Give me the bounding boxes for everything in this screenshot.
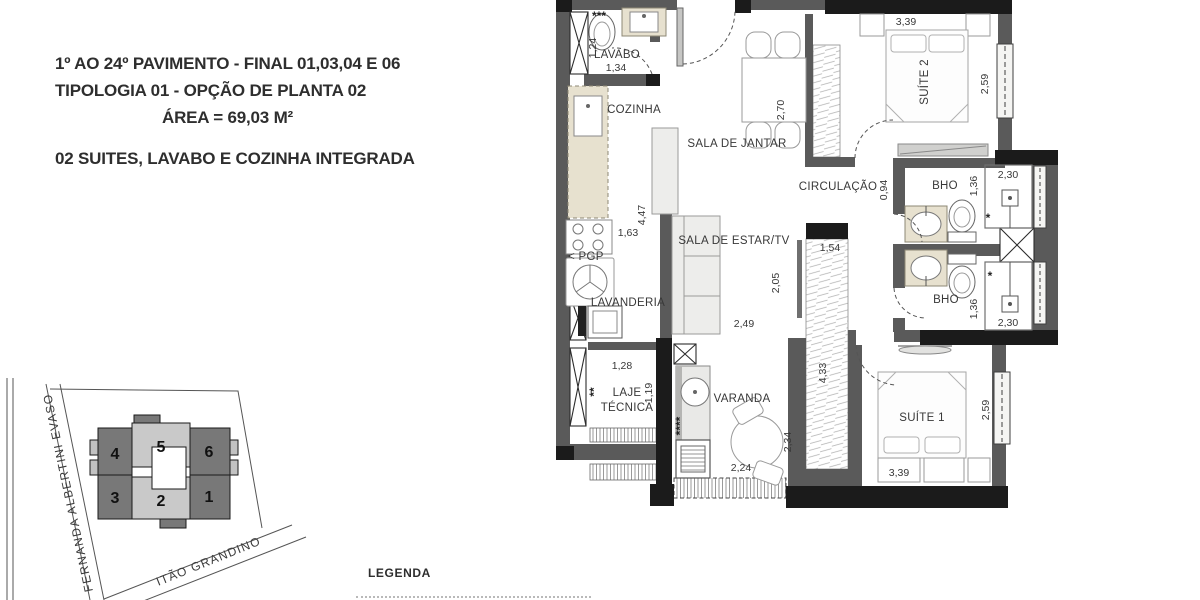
note-stars-varanda: **** xyxy=(673,416,687,435)
room-label-sala-jantar: SALA DE JANTAR xyxy=(687,138,786,150)
entry-door-arc xyxy=(683,11,735,64)
room-label-sala-estar: SALA DE ESTAR/TV xyxy=(678,235,789,247)
room-label-cozinha: COZINHA xyxy=(607,104,661,116)
floor-plan: LAVABO COZINHA SALA DE JANTAR CIRCULAÇÃO… xyxy=(552,0,1060,515)
dim-suite1-w: 3,39 xyxy=(889,467,910,479)
window-suite2 xyxy=(997,44,1013,118)
room-label-varanda: VARANDA xyxy=(714,393,771,405)
unit-1: 1 xyxy=(205,489,214,506)
duct xyxy=(578,306,586,336)
window-shower-top xyxy=(1034,166,1046,228)
room-label-bho-bottom: BHO xyxy=(933,294,959,306)
faucet-dot xyxy=(586,104,590,108)
unit-4: 4 xyxy=(111,446,120,463)
dining-table xyxy=(742,58,806,122)
dim-jantar-h: 2,70 xyxy=(775,100,787,121)
dim-bho-top-h: 1,36 xyxy=(968,176,980,197)
room-label-lavanderia: LAVANDERIA xyxy=(591,297,665,309)
bho-bottom-toilet xyxy=(948,254,976,298)
street-name-grandino: ITÃO GRANDINO xyxy=(154,534,263,589)
shower-head-bottom xyxy=(1002,262,1018,312)
note-stars-laje: ** xyxy=(587,387,601,397)
dim-lavabo-h: 1,24 xyxy=(587,38,599,59)
nightstand xyxy=(860,14,884,36)
laje-grille-top xyxy=(590,428,658,442)
shaft xyxy=(1000,228,1034,262)
pillow xyxy=(929,35,964,52)
dim-bho-top-w: 2,30 xyxy=(998,169,1019,181)
nightstand xyxy=(966,14,990,36)
dim-cozinha-w: 1,63 xyxy=(618,227,639,239)
tv-panel xyxy=(797,240,802,318)
room-label-pgp: < PGP xyxy=(568,251,604,263)
floorplan-page: 1º AO 24º PAVIMENTO - FINAL 01,03,04 E 0… xyxy=(0,0,1200,600)
dim-closet-h: 4,33 xyxy=(817,363,829,384)
chair xyxy=(746,32,771,58)
nightstand xyxy=(968,458,990,482)
note-stars-lavabo: *** xyxy=(592,9,606,23)
room-label-suite2: SUÍTE 2 xyxy=(918,59,931,105)
dim-varanda-w: 2,24 xyxy=(731,462,752,474)
dim-varanda-h: 2,34 xyxy=(782,432,794,453)
shaft xyxy=(570,12,588,74)
dim-bho-bottom-w: 2,30 xyxy=(998,317,1019,329)
dim-cozinha-h: 4,47 xyxy=(636,205,648,226)
pillow xyxy=(891,35,926,52)
pillow xyxy=(884,437,919,453)
dining-set xyxy=(742,32,806,148)
laundry-tank xyxy=(588,306,622,338)
title-block: 1º AO 24º PAVIMENTO - FINAL 01,03,04 E 0… xyxy=(55,50,415,172)
unit-3: 3 xyxy=(111,490,120,507)
dim-closet-top: 1,54 xyxy=(820,242,841,254)
pillow xyxy=(925,437,960,453)
bho-top-sink xyxy=(905,206,947,242)
closet-main xyxy=(806,239,848,469)
dim-bho-bottom-h: 1,36 xyxy=(968,299,980,320)
dim-laje-h: 1,19 xyxy=(643,383,655,404)
legend-title: LEGENDA xyxy=(368,566,431,580)
dim-lavabo-w: 1,34 xyxy=(606,62,627,74)
title-subtitle: 02 SUITES, LAVABO E COZINHA INTEGRADA xyxy=(55,145,415,172)
legend-items-cutoff xyxy=(356,596,591,598)
closet-suite2 xyxy=(813,45,840,157)
suite2-door-arc xyxy=(855,120,893,158)
kitchen-sink xyxy=(574,96,602,136)
shaft xyxy=(570,348,586,426)
title-line-3: ÁREA = 69,03 M² xyxy=(55,104,400,131)
unit-2: 2 xyxy=(157,493,166,510)
unit-5: 5 xyxy=(157,439,166,456)
window-suite1 xyxy=(994,372,1010,444)
dim-estar-h: 2,05 xyxy=(770,273,782,294)
chair xyxy=(775,32,800,58)
cooktop xyxy=(566,220,612,254)
site-plan: 4 5 6 3 2 1 FERNANDA ALBERTINI EVASO ITÃ… xyxy=(0,378,330,600)
grill xyxy=(676,440,710,478)
room-label-circulacao: CIRCULAÇÃO xyxy=(799,180,877,193)
room-label-suite1: SUÍTE 1 xyxy=(899,411,945,424)
dim-circ-h: 0,94 xyxy=(878,180,890,201)
nightstand xyxy=(924,458,964,482)
room-label-lavabo: LAVABO xyxy=(594,49,640,61)
sideboard-tv xyxy=(898,144,988,156)
round-table xyxy=(731,416,783,468)
bho-top-toilet xyxy=(948,200,976,242)
note-star-bho-top: * xyxy=(986,211,991,225)
room-label-bho-top: BHO xyxy=(932,180,958,192)
unit-6: 6 xyxy=(205,444,214,461)
room-label-laje-1: LAJE xyxy=(613,387,642,399)
title-line-1: 1º AO 24º PAVIMENTO - FINAL 01,03,04 E 0… xyxy=(55,50,415,77)
shower-head-top xyxy=(1002,190,1018,228)
shaft xyxy=(674,344,696,364)
laje-grille-bottom xyxy=(590,464,658,480)
note-star-bho-bottom: * xyxy=(988,269,993,283)
dim-suite1-h: 2,59 xyxy=(980,400,992,421)
bho-bottom-door-arc xyxy=(894,288,926,318)
bho-bottom-sink xyxy=(905,250,947,286)
tall-cabinet xyxy=(652,128,678,214)
sofa xyxy=(672,216,720,334)
entry-door-leaf xyxy=(677,8,683,66)
window-shower-bottom xyxy=(1034,262,1046,324)
tv-console xyxy=(899,346,951,354)
dim-laje-w: 1,28 xyxy=(612,360,633,372)
title-line-2: TIPOLOGIA 01 - OPÇÃO DE PLANTA 02 xyxy=(55,77,415,104)
dim-estar-w: 2,49 xyxy=(734,318,755,330)
dim-suite2-w: 3,39 xyxy=(896,16,917,28)
street-edge xyxy=(118,537,306,600)
building-footprint xyxy=(90,415,238,528)
dim-suite2-h: 2,59 xyxy=(979,74,991,95)
